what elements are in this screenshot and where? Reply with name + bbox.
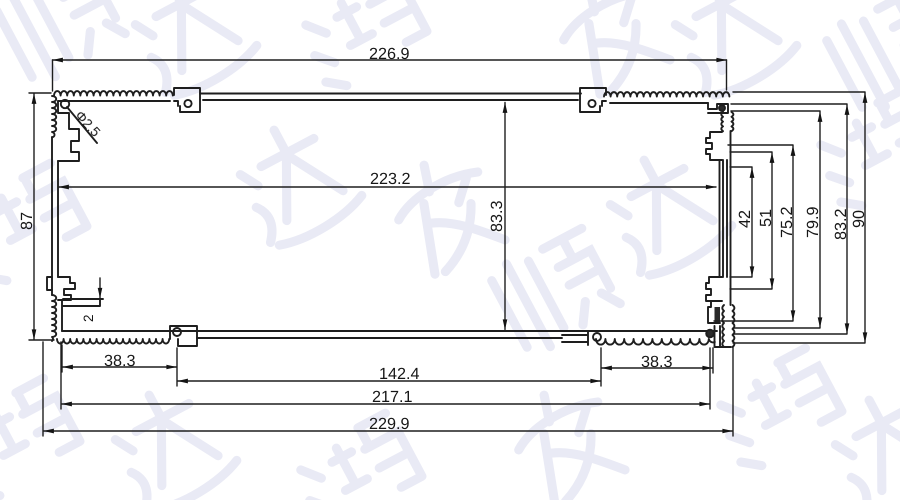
svg-text:83.2: 83.2 — [832, 208, 850, 240]
svg-text:79.9: 79.9 — [804, 206, 822, 238]
svg-text:226.9: 226.9 — [369, 45, 410, 63]
svg-text:142.4: 142.4 — [379, 365, 420, 383]
svg-text:217.1: 217.1 — [372, 388, 413, 406]
svg-text:90: 90 — [850, 210, 868, 228]
svg-text:38.3: 38.3 — [104, 352, 136, 370]
svg-text:75.2: 75.2 — [778, 206, 796, 238]
svg-text:83.3: 83.3 — [488, 200, 506, 232]
svg-text:51: 51 — [757, 209, 775, 227]
svg-text:38.3: 38.3 — [641, 353, 673, 371]
svg-text:223.2: 223.2 — [370, 170, 411, 188]
svg-text:229.9: 229.9 — [369, 415, 410, 433]
svg-text:2: 2 — [81, 314, 96, 322]
svg-text:87: 87 — [18, 212, 36, 230]
svg-text:42: 42 — [736, 210, 754, 228]
